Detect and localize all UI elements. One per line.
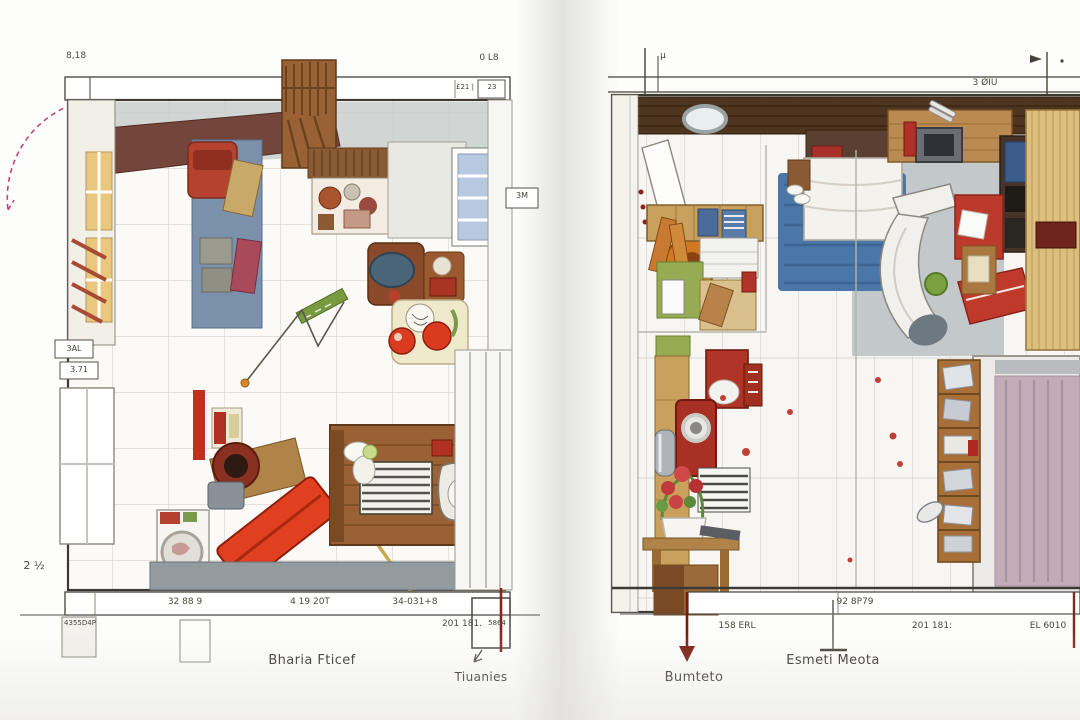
side-tag-b: 3.71 (70, 366, 88, 374)
left-plan (7, 60, 540, 662)
mauve-bed (973, 356, 1080, 606)
dim-side: 2 ½ (23, 560, 44, 571)
bowl-chair (368, 243, 424, 305)
bookshelf (938, 360, 980, 562)
red-book (968, 440, 978, 456)
floor-plan-illustration: 8,18 0 L8 £21 | 23 3M 3AL 3.71 2 ½ 32 88… (0, 0, 1080, 720)
grey-box (200, 238, 232, 264)
red-wall-stripe (193, 390, 205, 460)
right-top-dimension-lines (608, 48, 1080, 95)
thermos (655, 430, 675, 476)
left-bay (55, 100, 115, 379)
paper-sheet (958, 210, 988, 239)
dim-arrow-icon (1030, 55, 1042, 63)
slippers (787, 185, 803, 195)
grey-floor-strip (150, 562, 482, 590)
right-dim-tick: μ (660, 52, 666, 61)
dim-top-left: 8,18 (66, 52, 86, 61)
wardrobe (1026, 110, 1080, 350)
lower-left-window (60, 388, 114, 544)
red-pen-cup (904, 122, 916, 156)
wood-shelf-ornaments (308, 148, 388, 234)
dim-bottom-d: 201 181. (442, 620, 482, 629)
dim-strip-b: 23 (488, 84, 497, 91)
dim-bottom-b: 4 19 20T (290, 598, 330, 607)
dim-bottom-a: 32 88 9 (168, 598, 202, 607)
ceiling-light (684, 106, 726, 132)
tag-bottom-right: 5864 (488, 620, 506, 627)
side-table (424, 252, 464, 302)
red-kettle (742, 272, 756, 292)
right-dim-top: 3 ØIU (973, 79, 998, 88)
red-tin (432, 440, 452, 456)
drying-rack (698, 468, 750, 512)
wall-tag: 3M (516, 192, 528, 200)
blue-book (1005, 142, 1027, 182)
dim-strip-a: £21 | (456, 84, 474, 91)
green-pouf (925, 273, 947, 295)
mini-fridge (662, 280, 684, 314)
side-tag-a: 3AL (66, 345, 81, 353)
blue-rug-shelf (188, 140, 263, 328)
tag-bottom-left: 4355D4P (64, 620, 96, 627)
bottom-shading (0, 630, 1080, 720)
wardrobe-panel (1036, 222, 1076, 248)
plans-artwork (0, 0, 1080, 720)
right-plan (608, 48, 1080, 662)
grey-tray (208, 482, 244, 509)
dim-bottom-c: 34-031+8 (392, 598, 437, 607)
small-red-box (212, 408, 242, 448)
dim-top-right: 0 L8 (479, 54, 498, 63)
right-dim-strip: 92 8P79 (837, 598, 874, 607)
blue-box (698, 209, 718, 236)
orange-dot (241, 379, 249, 387)
kitchen-area (647, 205, 763, 330)
